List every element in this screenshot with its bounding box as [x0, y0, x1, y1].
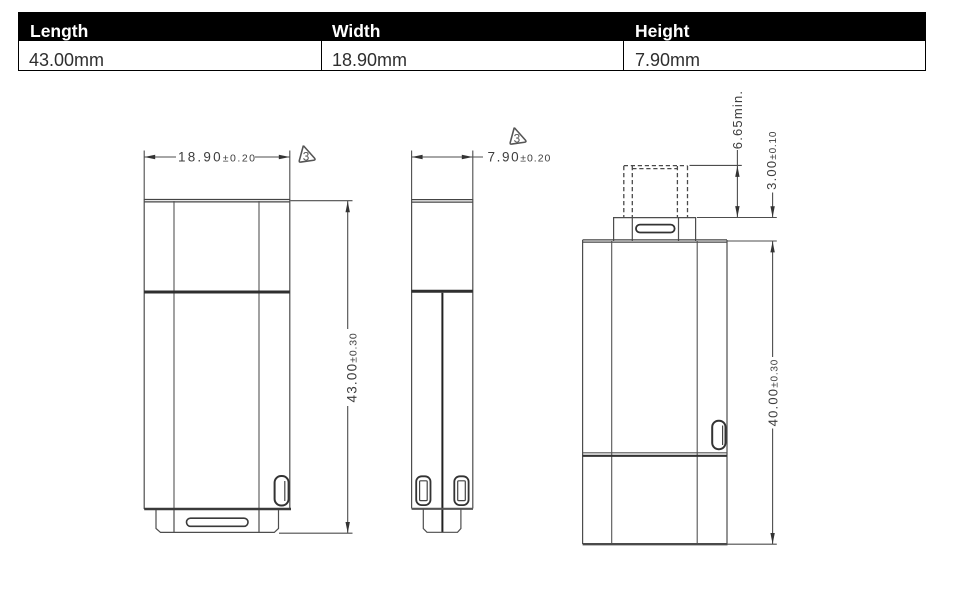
svg-text:7.90±0.20: 7.90±0.20 — [488, 150, 552, 165]
svg-text:18.90±0.20: 18.90±0.20 — [178, 150, 257, 165]
svg-text:40.00±0.30: 40.00±0.30 — [766, 359, 781, 427]
svg-text:3: 3 — [303, 150, 310, 163]
svg-text:43.00±0.30: 43.00±0.30 — [345, 333, 360, 403]
svg-text:3.00±0.10: 3.00±0.10 — [764, 131, 779, 190]
svg-text:6.65min.: 6.65min. — [730, 90, 745, 149]
svg-text:3: 3 — [514, 132, 521, 145]
